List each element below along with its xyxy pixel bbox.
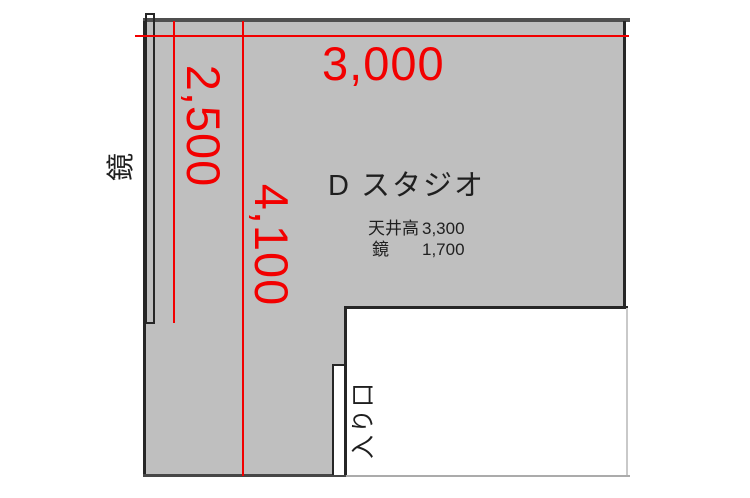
spec-label-ceiling: 天井高 bbox=[368, 218, 422, 239]
dimension-label-top: 3,000 bbox=[322, 40, 445, 87]
dimension-label-4100: 4,100 bbox=[248, 180, 296, 310]
wall-bottom-left-segment bbox=[143, 474, 346, 477]
room-specs: 天井高 3,300 鏡 1,700 bbox=[368, 218, 464, 260]
spec-label-mirror: 鏡 bbox=[368, 239, 422, 260]
mirror-label: 鏡 bbox=[101, 149, 137, 185]
spec-value-mirror: 1,700 bbox=[422, 239, 464, 260]
wall-bottom-right-segment bbox=[346, 475, 630, 477]
dimension-label-2500: 2,500 bbox=[180, 61, 228, 191]
wall-top bbox=[143, 18, 630, 22]
mirror-strip bbox=[145, 13, 155, 324]
floor-plan: 3,000 2,500 4,100 鏡 入り口 D スタジオ 天井高 3,300… bbox=[0, 0, 750, 498]
room-area-lower bbox=[146, 308, 344, 475]
room-title: D スタジオ bbox=[328, 162, 485, 204]
entrance-notch-top-wall bbox=[344, 306, 628, 309]
dimension-line-vertical-2500 bbox=[173, 21, 175, 323]
entrance-label: 入り口 bbox=[346, 372, 374, 468]
entrance-notch-right-edge bbox=[626, 308, 628, 475]
spec-value-ceiling: 3,300 bbox=[422, 218, 464, 239]
wall-right bbox=[623, 21, 626, 308]
dimension-line-vertical-4100 bbox=[242, 21, 244, 476]
